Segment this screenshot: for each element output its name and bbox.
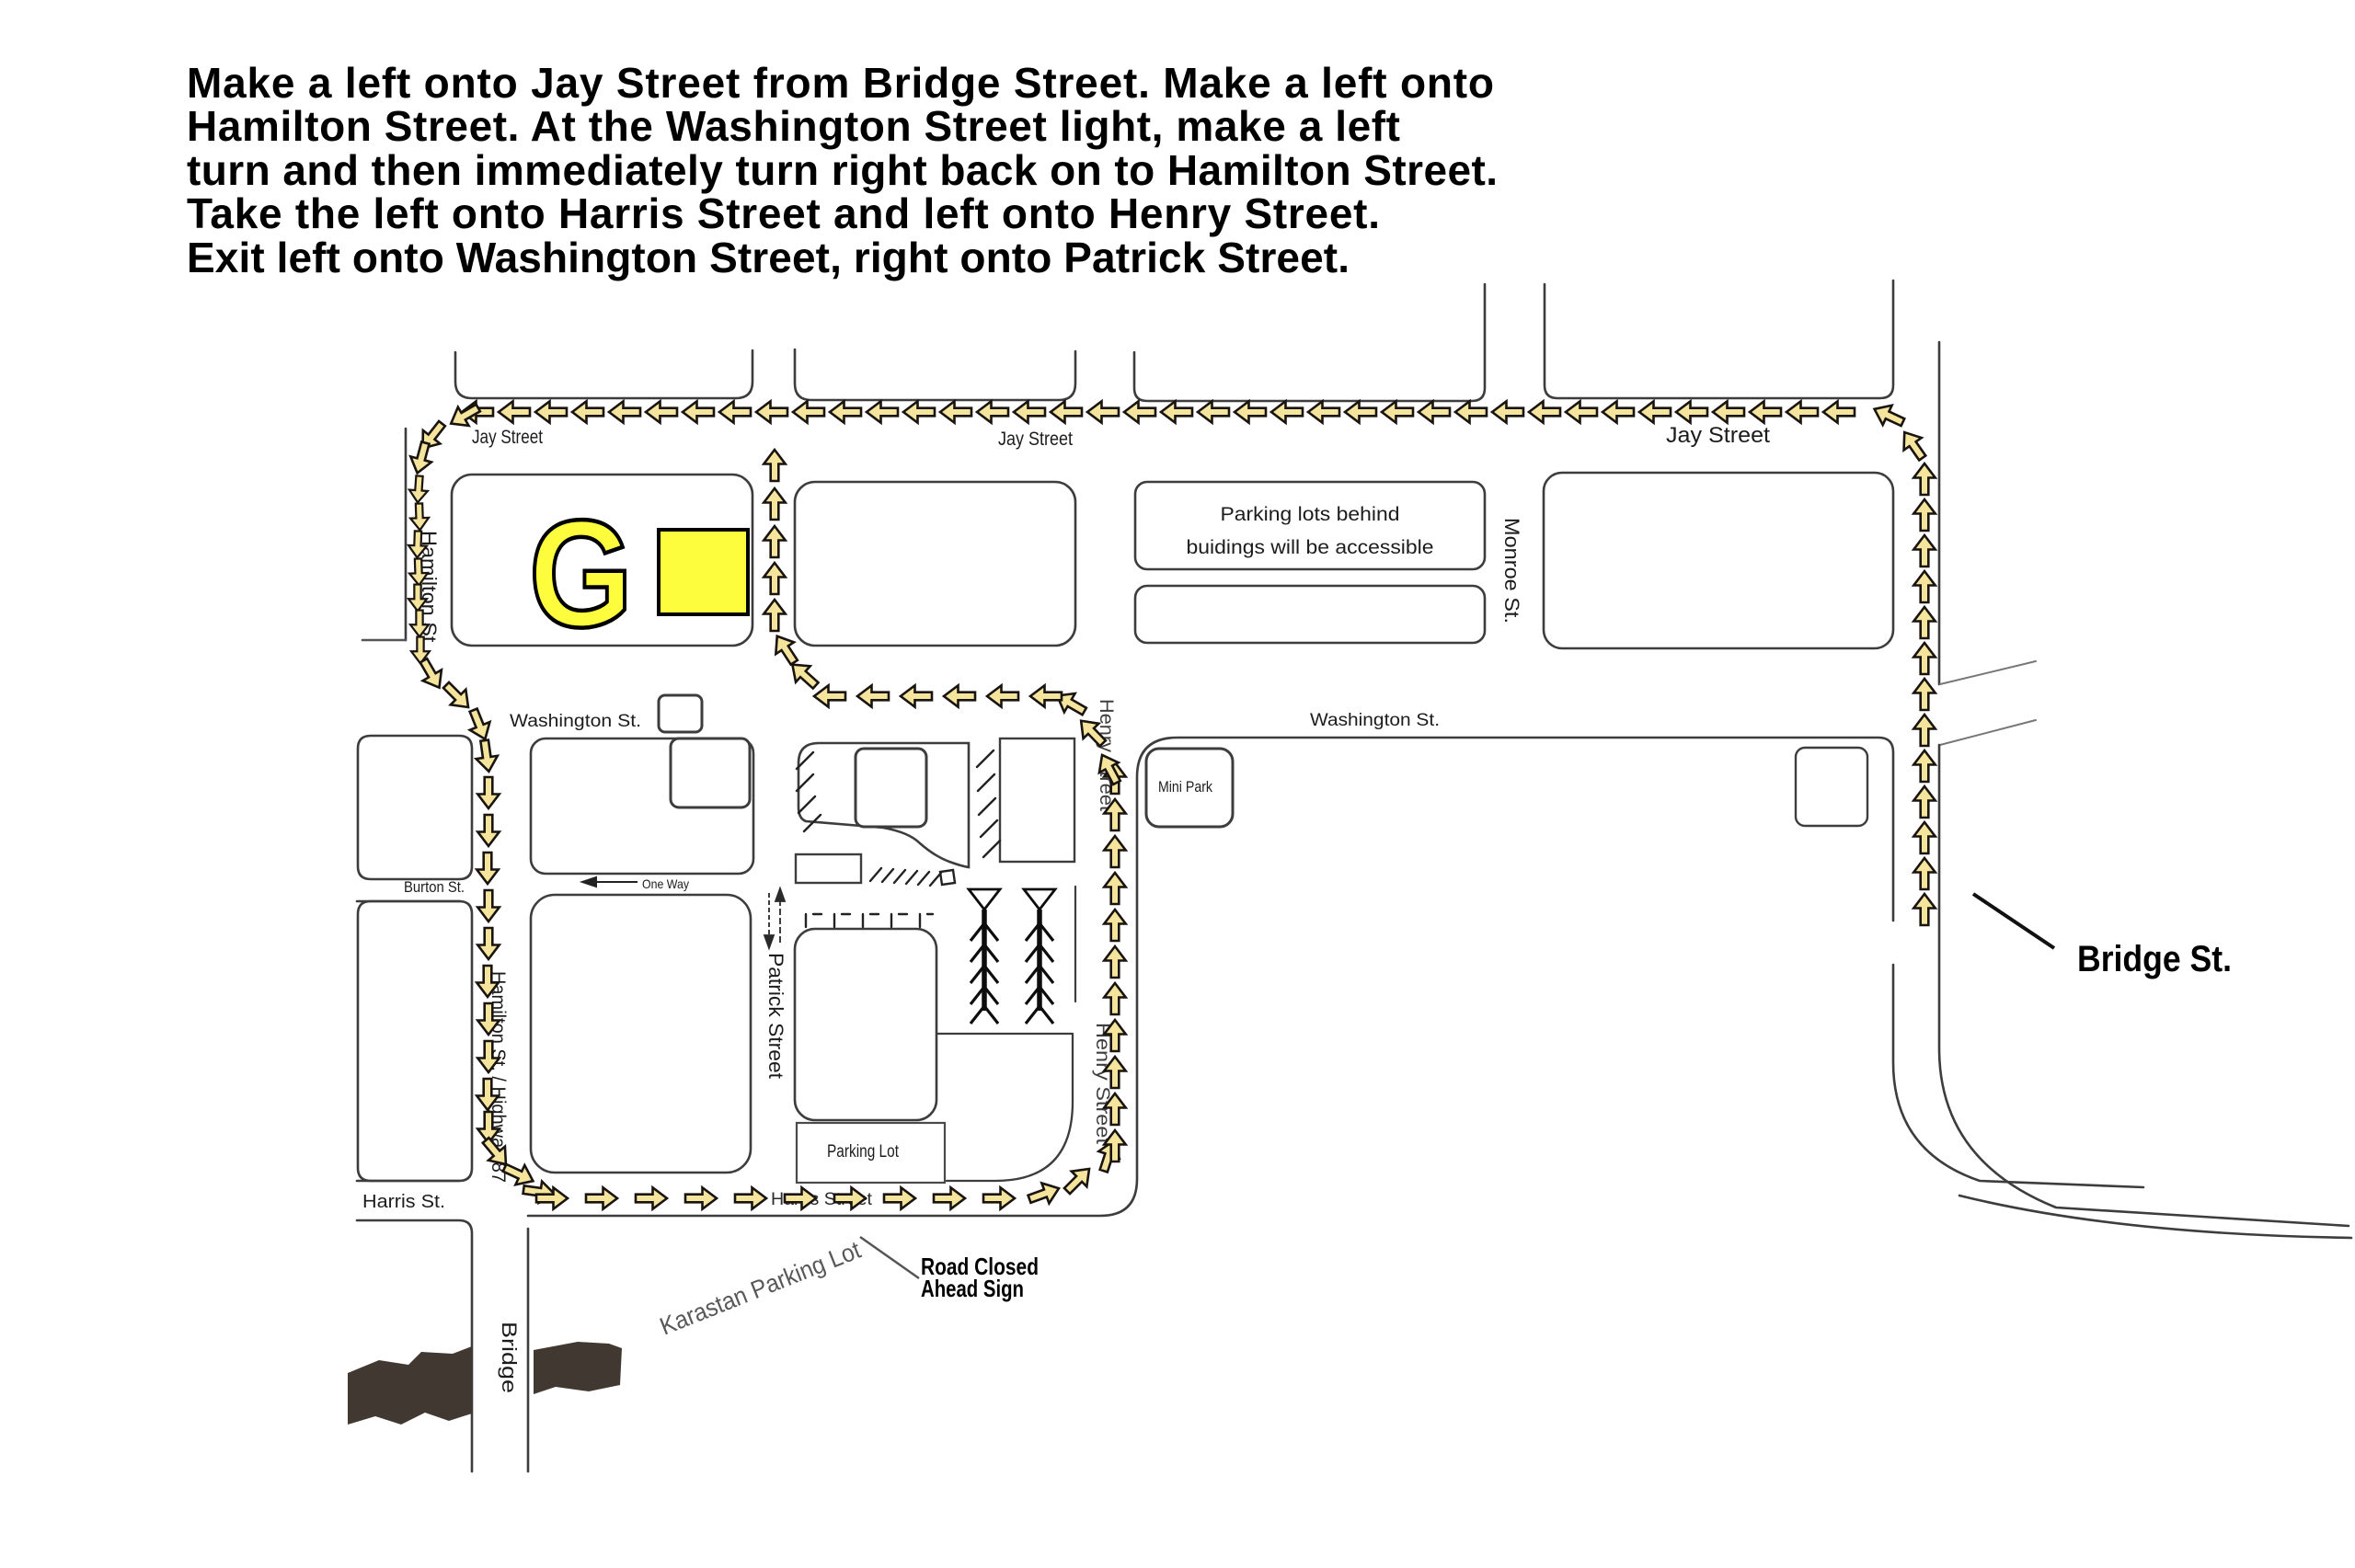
svg-text:Washington St.: Washington St.: [510, 712, 641, 731]
svg-text:Exit left onto Washington Stre: Exit left onto Washington Street, right …: [187, 234, 1350, 281]
svg-text:Ahead Sign: Ahead Sign: [921, 1275, 1024, 1302]
svg-text:turn and then immediately turn: turn and then immediately turn right bac…: [187, 146, 1498, 194]
svg-text:Parking lots behind: Parking lots behind: [1221, 504, 1400, 525]
svg-text:Jay Street: Jay Street: [1666, 423, 1770, 448]
svg-text:Harris St.: Harris St.: [362, 1192, 445, 1212]
svg-text:Monroe St.: Monroe St.: [1500, 518, 1523, 624]
svg-text:buidings will be accessible: buidings will be accessible: [1187, 537, 1434, 558]
svg-text:Jay Street: Jay Street: [472, 427, 543, 448]
svg-text:Make a left onto Jay Street fr: Make a left onto Jay Street from Bridge …: [187, 59, 1494, 107]
svg-text:Parking Lot: Parking Lot: [827, 1142, 900, 1162]
svg-text:G: G: [529, 489, 633, 659]
svg-text:One Way: One Way: [642, 876, 689, 891]
svg-text:Bridge: Bridge: [498, 1322, 521, 1393]
svg-text:Burton St.: Burton St.: [404, 878, 465, 896]
svg-text:Take the left onto Harris Stre: Take the left onto Harris Street and lef…: [187, 189, 1380, 237]
svg-text:Bridge St.: Bridge St.: [2077, 939, 2232, 979]
svg-text:Jay Street: Jay Street: [998, 429, 1073, 450]
svg-text:Hamilton Street. At the Washin: Hamilton Street. At the Washington Stree…: [187, 102, 1400, 150]
svg-text:Patrick Street: Patrick Street: [764, 953, 787, 1079]
svg-text:Washington St.: Washington St.: [1310, 711, 1440, 730]
svg-text:Mini Park: Mini Park: [1158, 778, 1212, 795]
